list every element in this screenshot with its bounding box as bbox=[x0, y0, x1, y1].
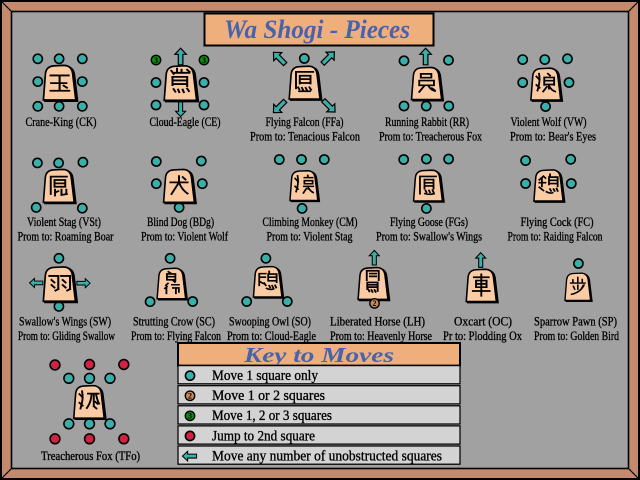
svg-text:Strutting Crow (SC): Strutting Crow (SC) bbox=[133, 314, 215, 329]
svg-text:Wa Shogi - Pieces: Wa Shogi - Pieces bbox=[224, 15, 410, 44]
svg-text:Prom to: Swallow's Wings: Prom to: Swallow's Wings bbox=[376, 229, 482, 244]
svg-text:Prom to: Violent Stag: Prom to: Violent Stag bbox=[267, 229, 353, 244]
svg-text:2: 2 bbox=[373, 299, 377, 308]
svg-text:Prom to: Violent Wolf: Prom to: Violent Wolf bbox=[141, 229, 229, 244]
svg-text:Violent Wolf (VW): Violent Wolf (VW) bbox=[511, 114, 587, 129]
svg-text:Prom to: Golden Bird: Prom to: Golden Bird bbox=[534, 328, 619, 343]
svg-text:Prom to: Gliding Swallow: Prom to: Gliding Swallow bbox=[18, 328, 115, 343]
svg-text:Key to Moves: Key to Moves bbox=[243, 343, 394, 367]
svg-text:2: 2 bbox=[188, 392, 192, 401]
svg-text:Flying Goose (FGs): Flying Goose (FGs) bbox=[390, 214, 468, 229]
svg-text:Climbing Monkey (CM): Climbing Monkey (CM) bbox=[263, 214, 358, 229]
svg-text:Prom to: Bear's Eyes: Prom to: Bear's Eyes bbox=[510, 129, 596, 144]
svg-text:Cloud-Eagle (CE): Cloud-Eagle (CE) bbox=[150, 114, 221, 129]
svg-text:Sparrow Pawn (SP): Sparrow Pawn (SP) bbox=[534, 314, 617, 329]
svg-text:Prom to: Tenacious Falcon: Prom to: Tenacious Falcon bbox=[250, 129, 360, 144]
svg-text:Jump to 2nd square: Jump to 2nd square bbox=[212, 428, 315, 444]
svg-text:Prom to: Raiding Falcon: Prom to: Raiding Falcon bbox=[508, 229, 603, 244]
svg-text:Move 1, 2 or 3 squares: Move 1, 2 or 3 squares bbox=[212, 408, 332, 424]
svg-text:Flying Falcon (FFa): Flying Falcon (FFa) bbox=[266, 114, 344, 129]
svg-text:Prom to: Cloud-Eagle: Prom to: Cloud-Eagle bbox=[227, 328, 316, 343]
svg-text:Prom to: Heavenly Horse: Prom to: Heavenly Horse bbox=[330, 328, 432, 343]
svg-text:3: 3 bbox=[188, 412, 192, 421]
svg-text:Flying Cock (FC): Flying Cock (FC) bbox=[521, 214, 594, 229]
svg-text:3: 3 bbox=[202, 56, 206, 65]
svg-text:Violent Stag (VSt): Violent Stag (VSt) bbox=[27, 214, 101, 229]
svg-text:Liberated Horse (LH): Liberated Horse (LH) bbox=[330, 314, 425, 329]
svg-text:3: 3 bbox=[154, 56, 158, 65]
svg-text:Treacherous Fox (TFo): Treacherous Fox (TFo) bbox=[41, 448, 140, 463]
svg-text:Crane-King (CK): Crane-King (CK) bbox=[26, 114, 97, 129]
svg-text:Pr to: Plodding Ox: Pr to: Plodding Ox bbox=[443, 328, 522, 343]
svg-text:Prom to: Treacherous Fox: Prom to: Treacherous Fox bbox=[379, 129, 482, 144]
svg-text:Oxcart (OC): Oxcart (OC) bbox=[454, 314, 512, 329]
svg-text:Prom to: Roaming Boar: Prom to: Roaming Boar bbox=[18, 229, 115, 244]
svg-text:Move 1 or 2 squares: Move 1 or 2 squares bbox=[212, 388, 325, 404]
svg-text:Move any number of unobstructe: Move any number of unobstructed squares bbox=[212, 448, 442, 464]
svg-text:Blind Dog (BDg): Blind Dog (BDg) bbox=[147, 214, 214, 229]
svg-text:Swallow's Wings (SW): Swallow's Wings (SW) bbox=[19, 314, 111, 329]
svg-text:Running Rabbit (RR): Running Rabbit (RR) bbox=[385, 114, 469, 129]
svg-text:Prom to: Flying Falcon: Prom to: Flying Falcon bbox=[131, 328, 221, 343]
svg-text:Swooping Owl (SO): Swooping Owl (SO) bbox=[229, 314, 311, 329]
svg-text:Move 1 square only: Move 1 square only bbox=[212, 368, 319, 384]
